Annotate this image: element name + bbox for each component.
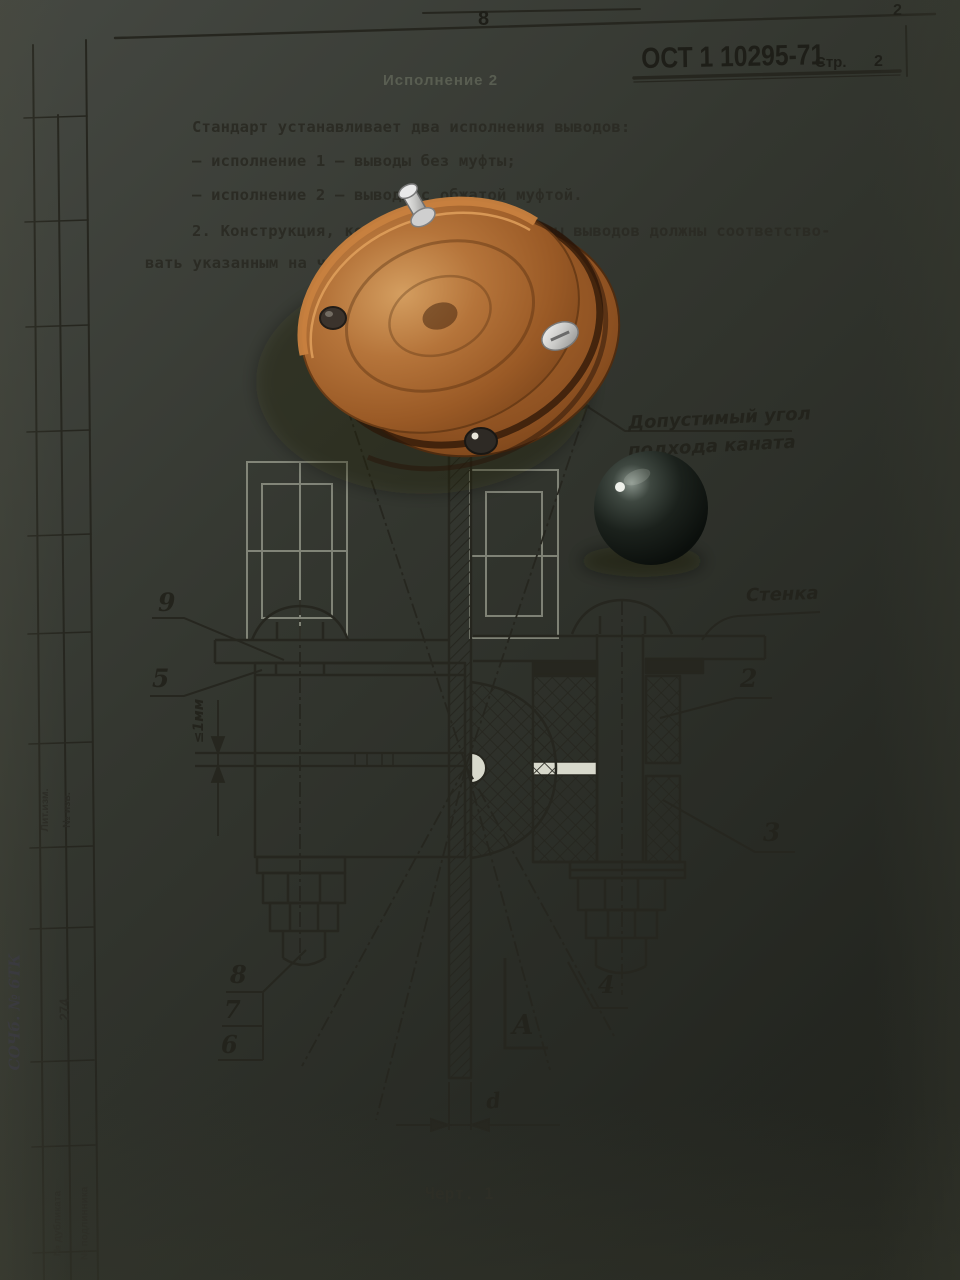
stamp-no-izv: № изв.: [61, 765, 73, 855]
callout-5: 5: [152, 664, 169, 693]
stamp-no-podlinnika: № подлинника: [80, 1174, 91, 1274]
callout-7: 7: [224, 995, 241, 1024]
page-number: 2: [874, 53, 883, 71]
paragraph-1: Стандарт устанавливает два исполнения вы…: [192, 118, 630, 136]
stamp-lit-izm: Лит.изм.: [39, 765, 51, 855]
showthrough-lines: [247, 462, 558, 640]
paragraph-4: 2. Конструкция, комплектность и размеры …: [192, 222, 831, 240]
showthrough-text: Исполнение 2: [383, 72, 498, 89]
diameter-label: d: [485, 1087, 502, 1113]
callout-2: 2: [740, 664, 757, 693]
paragraph-5: вать указанным на чертеже и в таблице.: [145, 254, 507, 272]
sheet-fold-number: 8: [478, 8, 489, 31]
corner-page-number: 2: [893, 2, 902, 20]
paragraph-2: – исполнение 1 – выводы без муфты;: [192, 152, 516, 170]
angle-arc: [346, 387, 588, 413]
figure-caption: Черт. 1: [425, 1184, 494, 1203]
view-label: А: [512, 1010, 534, 1041]
wall-label: Стенка: [746, 583, 819, 607]
stamp-no-dublikata: № дубликата: [53, 1174, 64, 1274]
gap-dimension-label: ≤1мм: [191, 681, 207, 761]
callout-8: 8: [230, 960, 247, 989]
callout-4: 4: [598, 970, 615, 999]
photo-of-standard-page: 8 2 ОСТ 1 10295-71 Стр. 2 Исполнение 2 С…: [0, 0, 960, 1280]
handwritten-inventory-note: СОЧб. № 6ТК: [6, 940, 24, 1085]
paragraph-3: – исполнение 2 – выводы с обжатой муфтой…: [192, 186, 583, 204]
clamp-assembly: [195, 432, 765, 1078]
standard-number: ОСТ 1 10295-71: [641, 39, 824, 76]
page-word: Стр.: [815, 54, 847, 71]
callout-9: 9: [158, 588, 175, 617]
callout-6: 6: [221, 1030, 238, 1059]
inventory-number: 274: [57, 965, 72, 1055]
callout-3: 3: [763, 818, 780, 847]
